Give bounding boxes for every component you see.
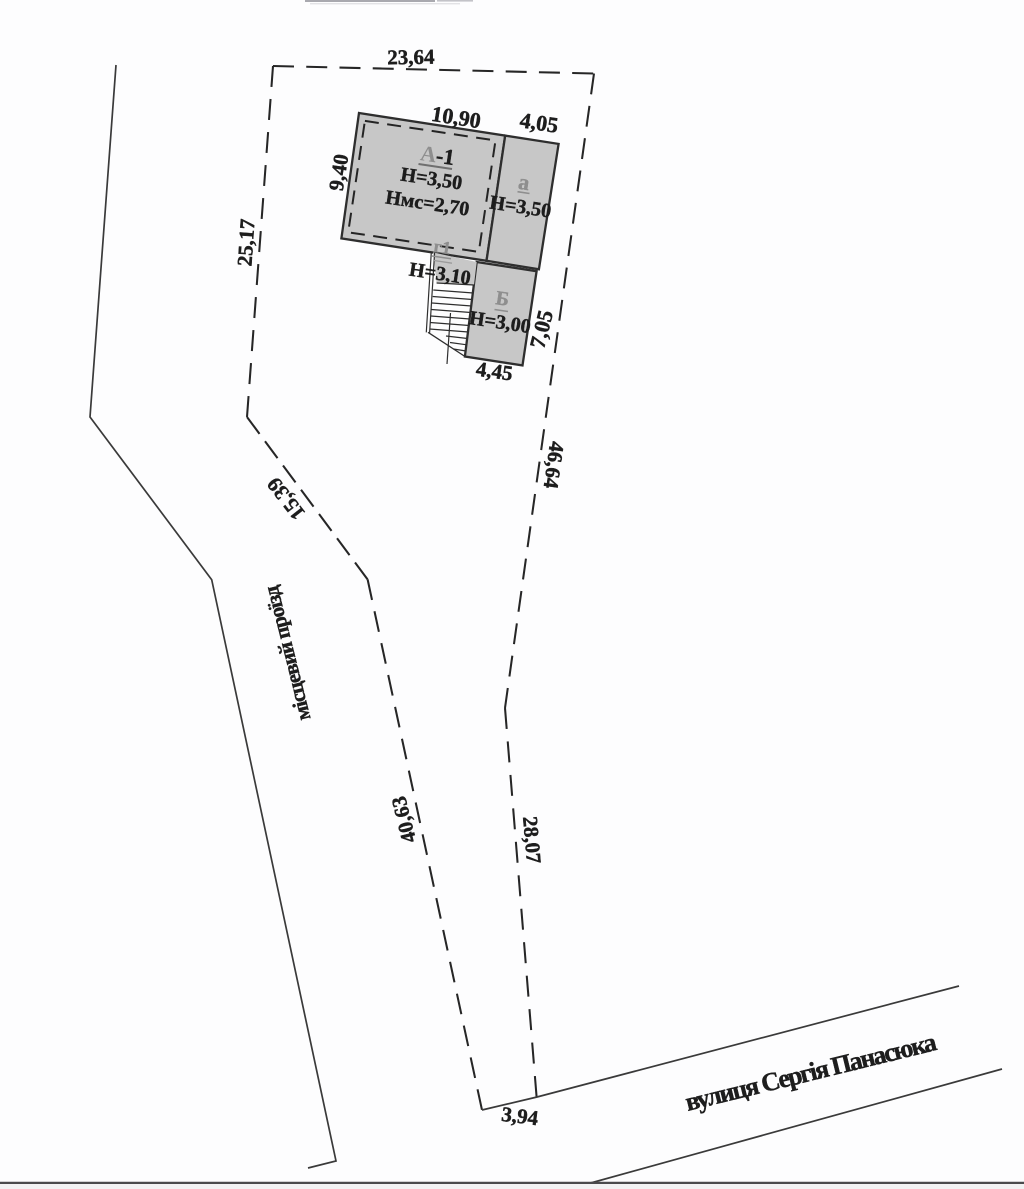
svg-text:3,94: 3,94 <box>500 1102 540 1130</box>
svg-text:28,07: 28,07 <box>518 815 546 864</box>
svg-text:25,17: 25,17 <box>232 218 259 267</box>
svg-text:г1: г1 <box>432 236 452 258</box>
svg-text:23,64: 23,64 <box>387 45 435 70</box>
svg-text:4,45: 4,45 <box>475 357 515 386</box>
